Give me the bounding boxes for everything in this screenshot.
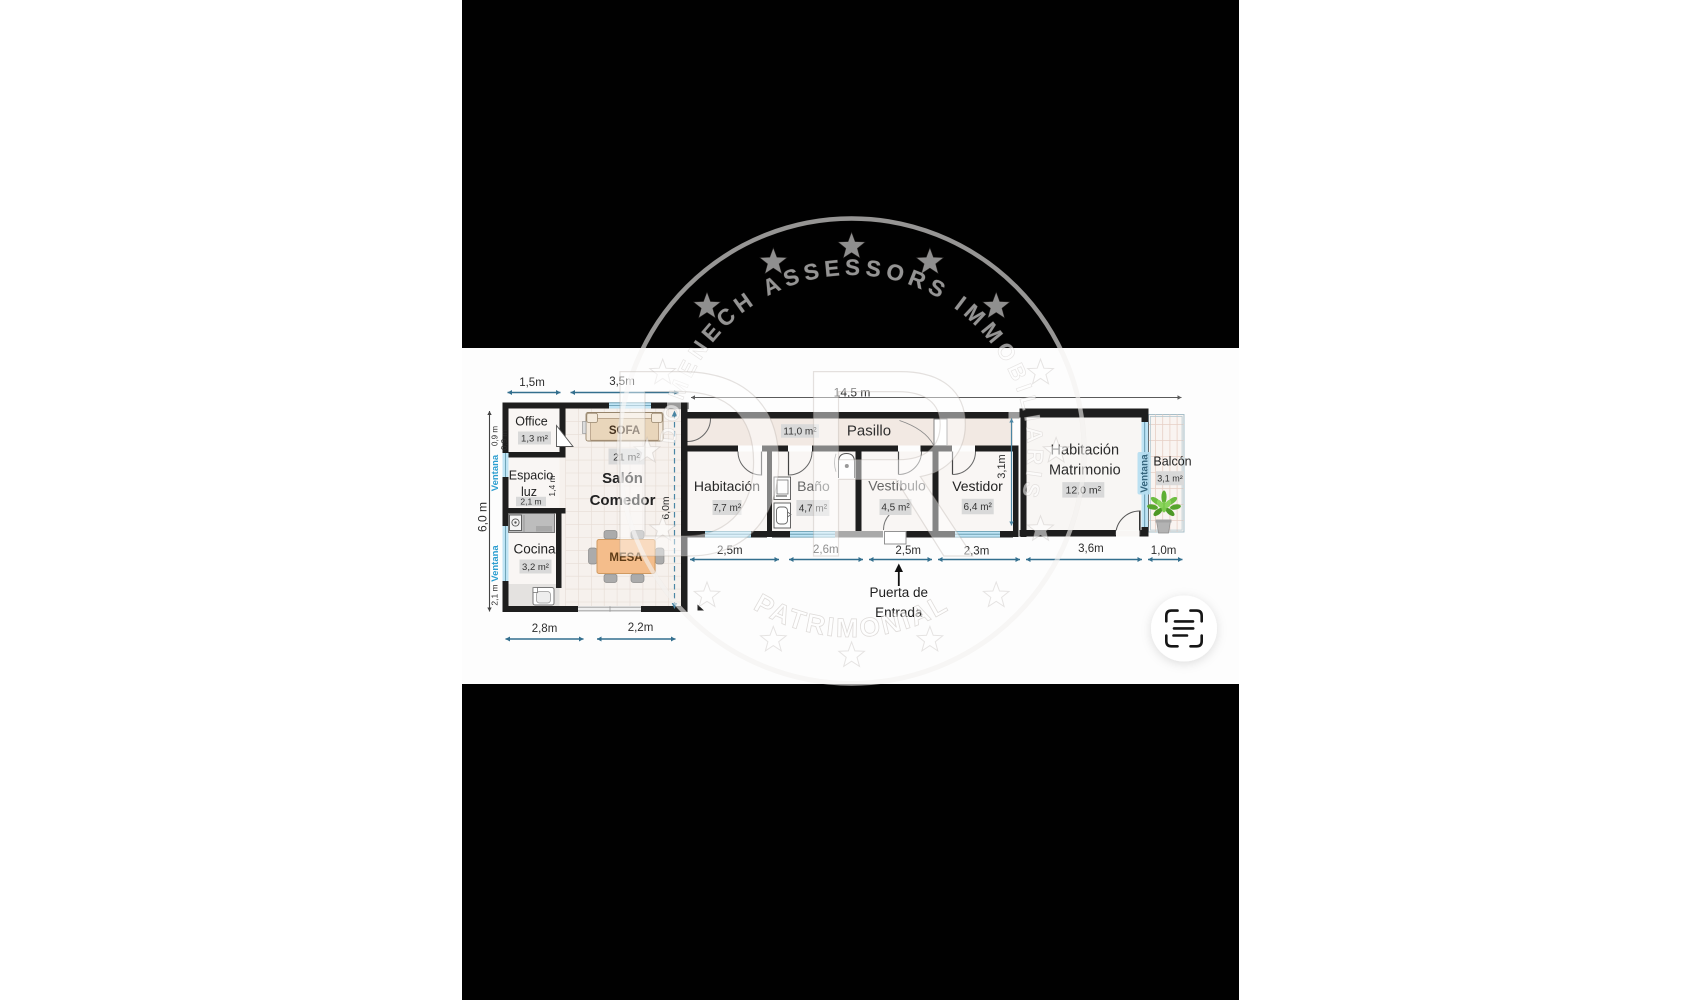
svg-text:Balcón: Balcón — [1153, 455, 1191, 469]
svg-text:3,6m: 3,6m — [1078, 543, 1104, 555]
svg-text:2,1 m: 2,1 m — [520, 497, 541, 507]
svg-text:1,0m: 1,0m — [1151, 545, 1177, 557]
svg-text:2,8m: 2,8m — [532, 623, 558, 635]
svg-text:3,2 m²: 3,2 m² — [522, 562, 549, 573]
svg-text:6,0 m: 6,0 m — [476, 502, 490, 532]
svg-text:0,9 m: 0,9 m — [500, 430, 509, 450]
svg-text:Ventana: Ventana — [1140, 454, 1151, 493]
svg-text:2,2m: 2,2m — [628, 622, 654, 634]
svg-text:Ventana: Ventana — [490, 545, 501, 582]
svg-text:Espacio: Espacio — [509, 469, 554, 483]
svg-text:3,1 m²: 3,1 m² — [1157, 473, 1183, 483]
svg-text:1,5m: 1,5m — [519, 377, 545, 389]
svg-text:Office: Office — [515, 415, 547, 429]
svg-text:1,3 m²: 1,3 m² — [521, 433, 548, 444]
svg-text:2,1 m: 2,1 m — [490, 584, 500, 605]
svg-text:Cocina: Cocina — [513, 542, 556, 557]
svg-text:DR: DR — [598, 313, 985, 613]
svg-text:3,1m: 3,1m — [996, 454, 1008, 478]
svg-text:0,9 m: 0,9 m — [491, 426, 500, 446]
svg-text:Ventana: Ventana — [490, 454, 501, 491]
